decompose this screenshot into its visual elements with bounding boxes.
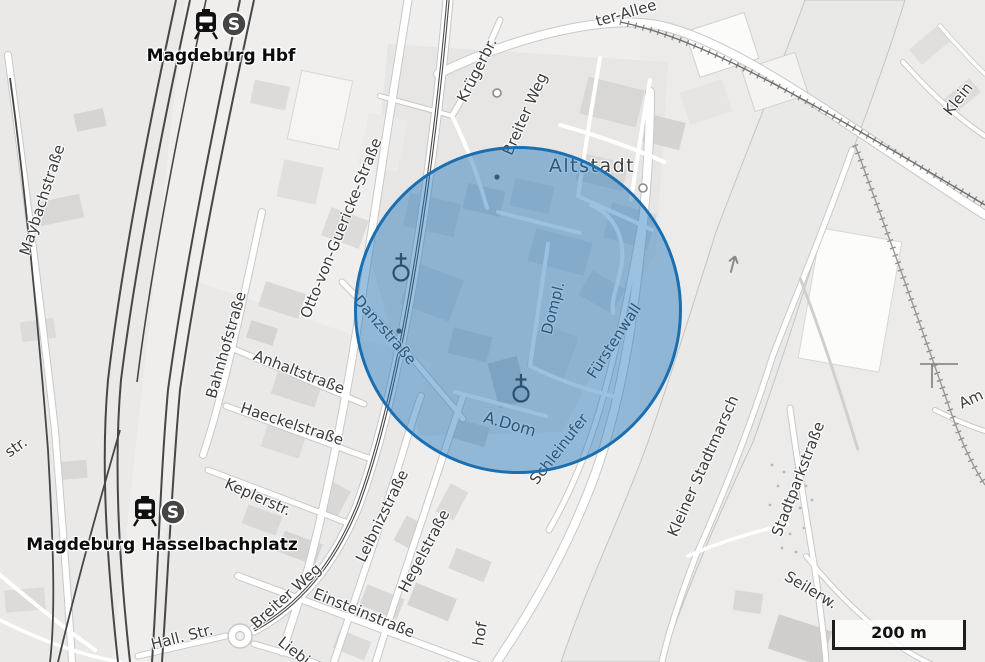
train-icon xyxy=(134,496,156,526)
map-canvas[interactable]: S S Magdeburg HbfMagdeburg Hasselbachpla… xyxy=(0,0,985,662)
roundabout xyxy=(228,624,252,648)
svg-text:S: S xyxy=(167,503,179,523)
scale-bar-label: 200 m xyxy=(871,623,927,642)
svg-text:S: S xyxy=(228,15,240,35)
sbahn-icon: S xyxy=(160,499,186,525)
sbahn-icon: S xyxy=(221,11,247,37)
scale-bar: 200 m xyxy=(832,620,966,650)
radius-circle-overlay[interactable] xyxy=(354,146,682,474)
train-icon xyxy=(195,9,217,39)
